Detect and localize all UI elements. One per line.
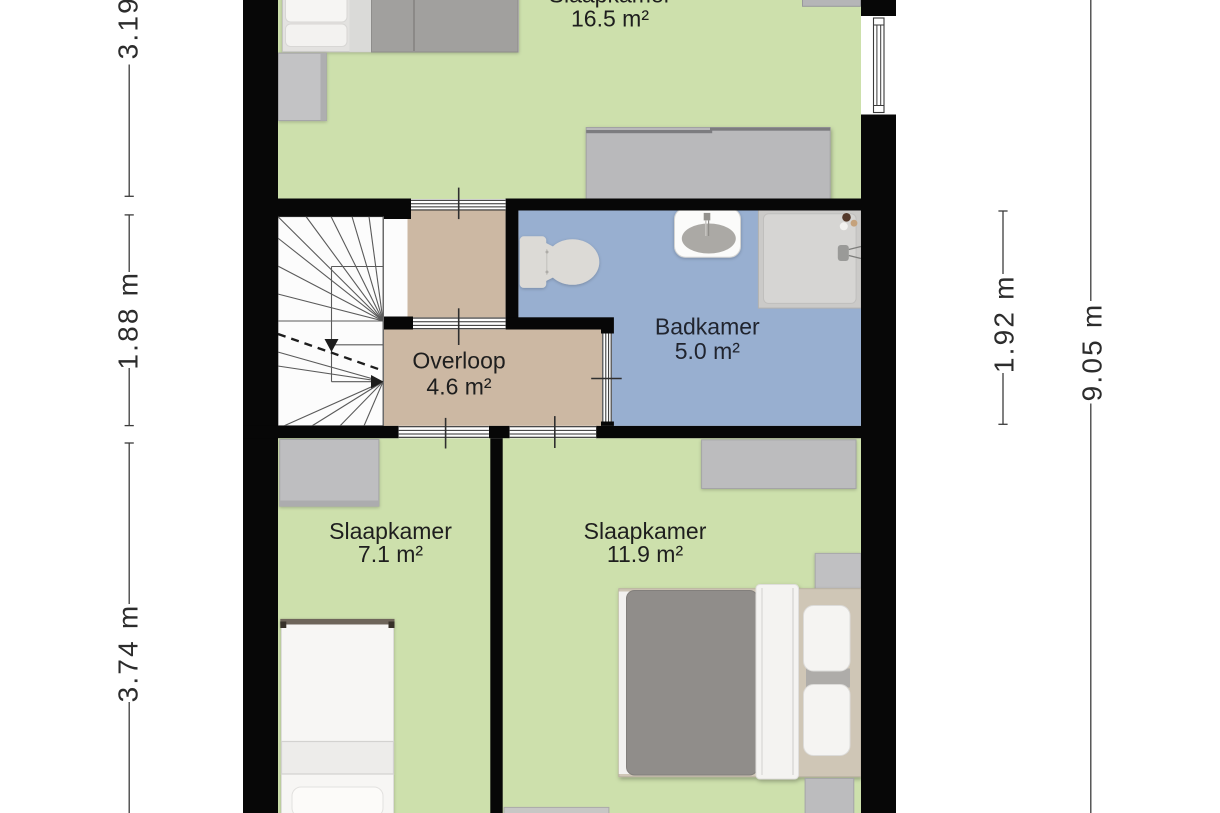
svg-text:1.88 m: 1.88 m (113, 271, 144, 370)
svg-text:Slaapkamer: Slaapkamer (329, 518, 452, 544)
svg-text:Badkamer: Badkamer (655, 314, 760, 340)
svg-text:1.92 m: 1.92 m (989, 274, 1020, 373)
svg-text:5.0 m²: 5.0 m² (675, 338, 741, 364)
svg-text:9.05 m: 9.05 m (1077, 303, 1108, 402)
svg-text:3.74 m: 3.74 m (113, 604, 144, 703)
svg-text:11.9 m²: 11.9 m² (607, 541, 684, 567)
svg-text:4.6 m²: 4.6 m² (426, 373, 492, 399)
svg-text:7.1 m²: 7.1 m² (358, 541, 424, 567)
svg-text:16.5 m²: 16.5 m² (571, 6, 649, 32)
svg-text:3.19 m: 3.19 m (113, 0, 144, 59)
svg-text:Slaapkamer: Slaapkamer (584, 518, 707, 544)
svg-text:Overloop: Overloop (412, 347, 505, 373)
